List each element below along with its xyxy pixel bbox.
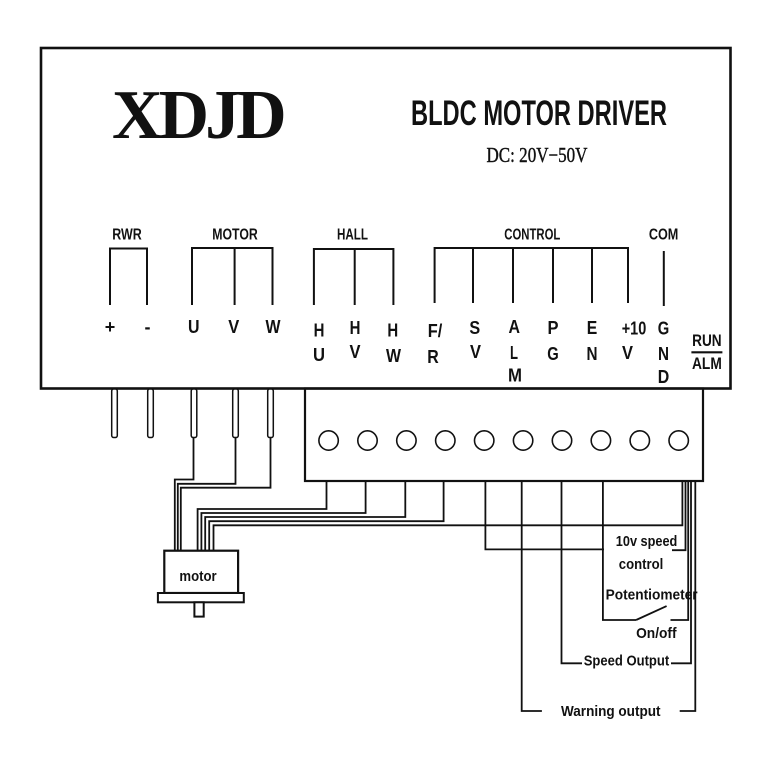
svg-text:DC: 20V−50V: DC: 20V−50V [487, 143, 588, 167]
svg-text:L: L [510, 343, 518, 363]
svg-text:G: G [547, 344, 559, 364]
svg-text:XDJD: XDJD [112, 77, 284, 154]
svg-text:U: U [188, 317, 200, 337]
svg-text:V: V [350, 342, 361, 362]
svg-text:D: D [658, 367, 670, 387]
svg-text:M: M [508, 366, 522, 386]
svg-text:Speed Output: Speed Output [584, 653, 670, 670]
svg-text:H: H [314, 321, 325, 341]
svg-text:HALL: HALL [337, 227, 368, 244]
svg-text:Potentiometer: Potentiometer [606, 586, 698, 603]
svg-text:F/: F/ [428, 321, 443, 341]
svg-text:U: U [313, 345, 325, 365]
svg-text:CONTROL: CONTROL [504, 227, 560, 244]
svg-text:G: G [658, 319, 670, 339]
svg-text:V: V [228, 317, 239, 337]
svg-text:E: E [587, 318, 598, 338]
svg-text:H: H [350, 318, 361, 338]
svg-text:R: R [427, 347, 439, 367]
svg-text:BLDC MOTOR DRIVER: BLDC MOTOR DRIVER [411, 94, 667, 133]
svg-text:V: V [622, 343, 633, 363]
svg-text:N: N [658, 344, 669, 364]
svg-text:RUN: RUN [692, 331, 722, 350]
svg-text:motor: motor [179, 568, 216, 585]
svg-text:W: W [266, 317, 281, 337]
svg-text:ALM: ALM [692, 354, 722, 373]
svg-text:W: W [386, 346, 401, 366]
svg-text:A: A [508, 317, 520, 337]
svg-text:On/off: On/off [636, 625, 677, 642]
svg-text:COM: COM [649, 227, 679, 244]
svg-text:+: + [105, 317, 116, 337]
svg-text:P: P [548, 318, 559, 338]
svg-text:-: - [145, 317, 151, 337]
svg-text:MOTOR: MOTOR [212, 227, 258, 244]
svg-text:N: N [587, 344, 598, 364]
svg-text:+10: +10 [622, 319, 647, 339]
svg-text:Warning output: Warning output [561, 703, 661, 720]
svg-text:H: H [387, 321, 398, 341]
svg-text:10v speed: 10v speed [616, 533, 678, 550]
svg-text:V: V [470, 342, 481, 362]
svg-text:RWR: RWR [112, 227, 142, 244]
svg-text:control: control [619, 556, 664, 573]
svg-text:S: S [469, 318, 480, 338]
